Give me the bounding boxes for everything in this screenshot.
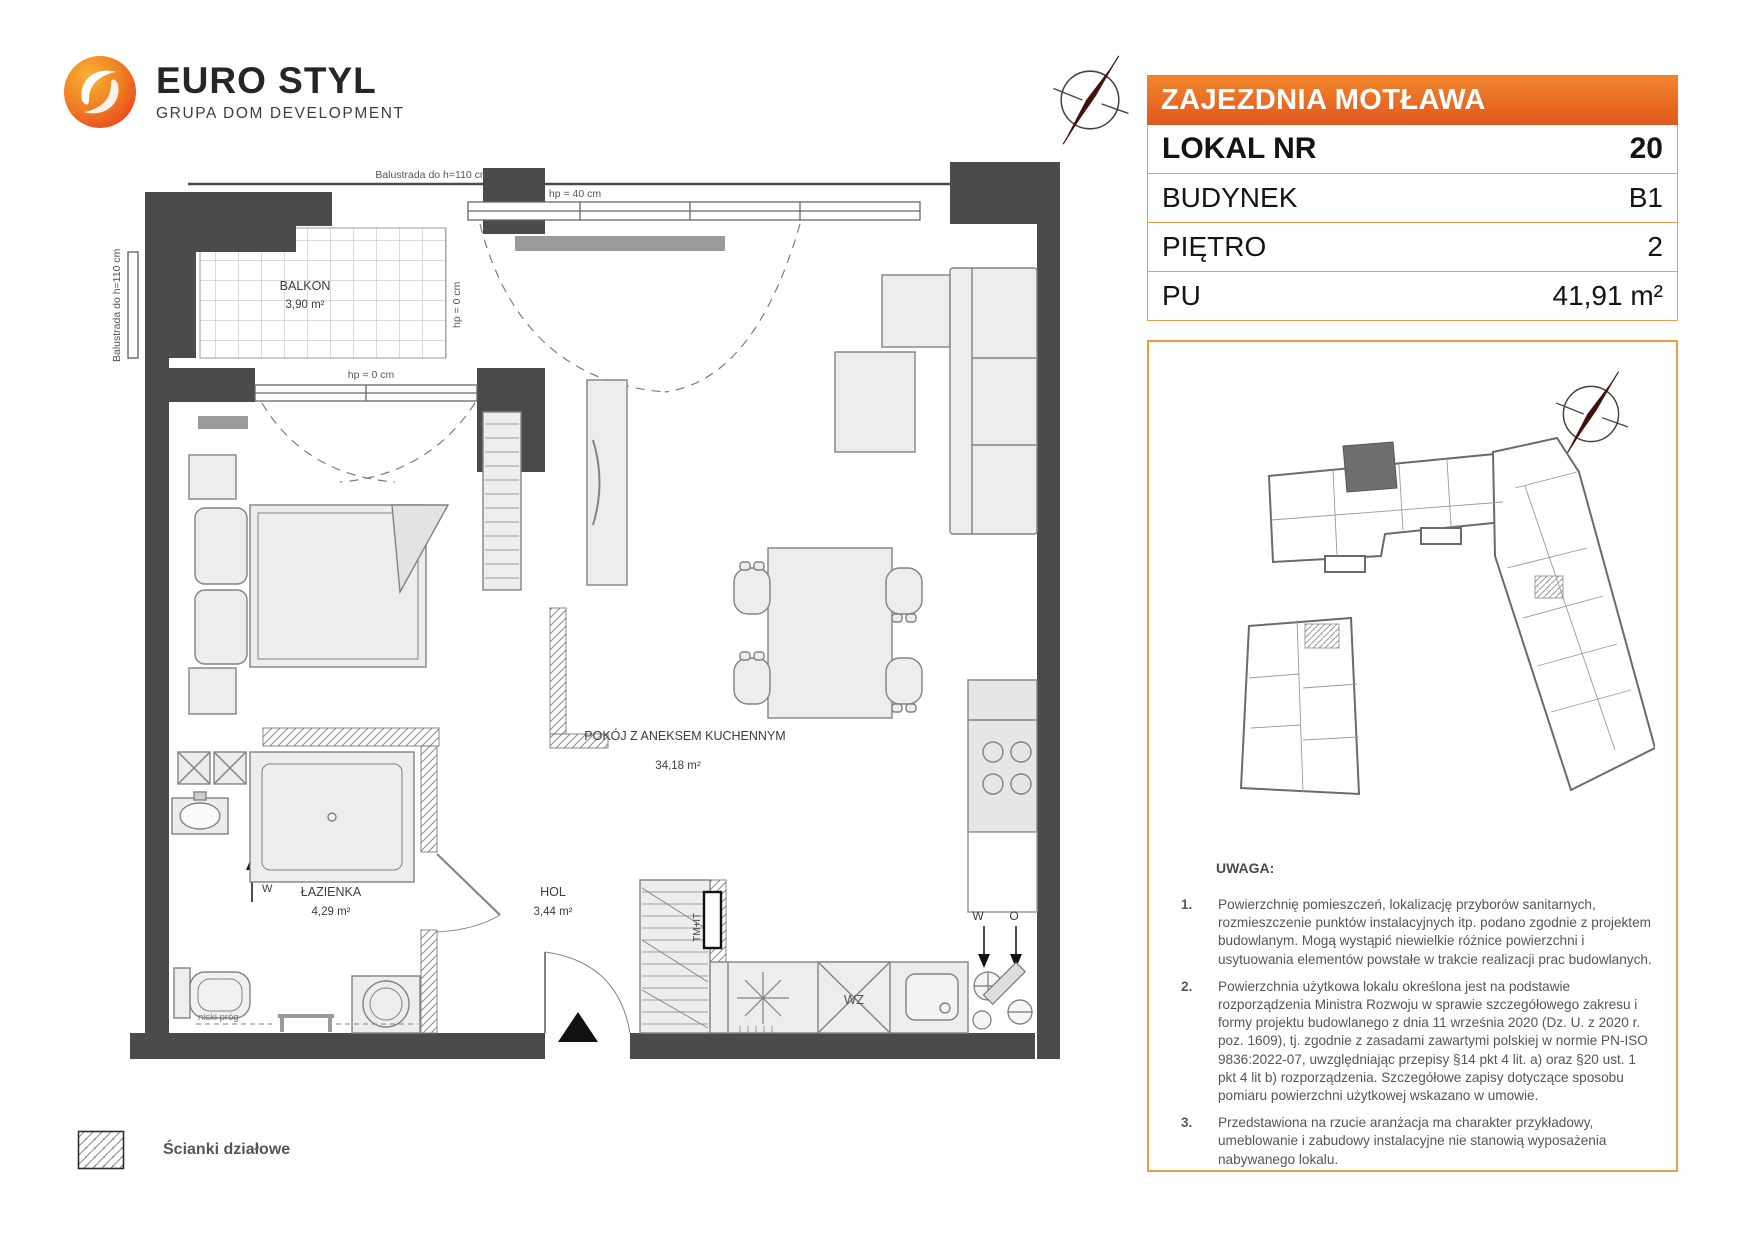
room-name-balkon: BALKON	[280, 279, 331, 293]
unit-details-panel: ZAJEZDNIA MOTŁAWA LOKAL NR 20 BUDYNEK B1…	[1147, 75, 1678, 321]
detail-value: B1	[1629, 182, 1663, 214]
entry-arrow-icon	[558, 1012, 598, 1042]
detail-row-lokal: LOKAL NR 20	[1148, 125, 1677, 174]
note-number: 2.	[1179, 978, 1218, 1105]
brand-subtitle: GRUPA DOM DEVELOPMENT	[156, 105, 405, 123]
tv-cabinet	[587, 380, 627, 585]
legend: Ścianki działowe	[77, 1130, 290, 1170]
project-title: ZAJEZDNIA MOTŁAWA	[1147, 75, 1678, 125]
threshold-bracket	[278, 1016, 334, 1032]
kitchen-tall-units	[968, 680, 1037, 832]
detail-value: 2	[1647, 231, 1663, 263]
furniture	[172, 268, 1037, 1042]
w-riser-label: W	[972, 909, 984, 923]
shower	[250, 752, 414, 882]
detail-row-budynek: BUDYNEK B1	[1148, 174, 1677, 223]
brand-title: EURO STYL	[156, 62, 405, 99]
detail-label: PU	[1162, 280, 1201, 312]
washbasin	[180, 803, 220, 829]
sink	[906, 974, 958, 1020]
pillow	[195, 508, 247, 584]
nightstand	[189, 455, 236, 499]
detail-value: 20	[1630, 132, 1663, 166]
note-text: Przedstawiona na rzucie aranżacja ma cha…	[1218, 1114, 1652, 1169]
hall-wardrobe	[640, 880, 710, 1033]
room-area-hol: 3,44 m²	[534, 906, 573, 918]
entry-door	[545, 952, 630, 1042]
coffee-table	[835, 352, 915, 452]
note-item: 1. Powierzchnię pomieszczeń, lokalizację…	[1179, 896, 1652, 969]
meter-box	[704, 892, 721, 948]
bathroom-door-leaf	[437, 854, 500, 915]
partition-hatch-swatch	[77, 1130, 125, 1170]
nightstand	[189, 668, 236, 714]
tm-it-label: TM+IT	[692, 913, 703, 942]
note-number: 3.	[1179, 1114, 1218, 1169]
note-item: 2. Powierzchnia użytkowa lokalu określon…	[1179, 978, 1652, 1105]
note-text: Powierzchnia użytkowa lokalu określona j…	[1218, 978, 1652, 1105]
hp0-vertical-label: hp = 0 cm	[451, 281, 463, 328]
location-and-notes-box: UWAGA: 1. Powierzchnię pomieszczeń, loka…	[1147, 340, 1678, 1172]
floor-plan: Balustrada do h=110 cm Balustrada do h=1…	[100, 140, 1060, 1080]
room-name-hol: HOL	[540, 885, 566, 899]
window-sill	[515, 236, 725, 251]
radiator	[198, 416, 248, 429]
balustrade-left	[128, 252, 138, 358]
w-bath-label: W	[262, 883, 273, 895]
room-name-pokoj: POKÓJ Z ANEKSEM KUCHENNYM	[584, 728, 785, 743]
wz-label: WZ	[844, 992, 864, 1007]
floor-key-plan	[1185, 428, 1655, 808]
notes: UWAGA: 1. Powierzchnię pomieszczeń, loka…	[1179, 860, 1652, 1178]
room-area-lazienka: 4,29 m²	[312, 906, 351, 918]
room-area-balkon: 3,90 m²	[286, 299, 325, 311]
detail-row-pu: PU 41,91 m²	[1148, 272, 1677, 321]
page: { "logo": { "brand": "EURO STYL", "subti…	[0, 0, 1754, 1240]
toilet	[174, 968, 250, 1018]
room-area-pokoj: 34,18 m²	[655, 760, 701, 772]
pipes	[973, 962, 1032, 1029]
hp40-label: hp = 40 cm	[549, 188, 601, 200]
compass-icon	[1042, 50, 1138, 150]
notes-title: UWAGA:	[1216, 860, 1652, 876]
detail-row-pietro: PIĘTRO 2	[1148, 223, 1677, 272]
detail-table: LOKAL NR 20 BUDYNEK B1 PIĘTRO 2 PU 41,91…	[1147, 125, 1678, 321]
note-text: Powierzchnię pomieszczeń, lokalizację pr…	[1218, 896, 1652, 969]
note-number: 1.	[1179, 896, 1218, 969]
room-name-lazienka: ŁAZIENKA	[301, 885, 362, 899]
wardrobe-louver	[483, 412, 521, 590]
building-outline	[1241, 438, 1655, 794]
detail-label: PIĘTRO	[1162, 231, 1266, 263]
note-item: 3. Przedstawiona na rzucie aranżacja ma …	[1179, 1114, 1652, 1169]
legend-label: Ścianki działowe	[163, 1141, 290, 1159]
highlighted-unit	[1343, 442, 1397, 492]
balustrade-left-label: Balustrada do h=110 cm	[111, 248, 123, 362]
o-riser-label: O	[1009, 909, 1018, 923]
detail-value: 41,91 m²	[1553, 280, 1664, 312]
pillow	[195, 590, 247, 664]
risers	[968, 832, 1037, 968]
brand-logo: EURO STYL GRUPA DOM DEVELOPMENT	[58, 50, 405, 134]
niski-prog-label: niski próg	[198, 1012, 239, 1023]
dining-table	[768, 548, 892, 718]
balustrade-top-label: Balustrada do h=110 cm	[375, 169, 489, 181]
detail-label: LOKAL NR	[1162, 132, 1316, 166]
hp0-horizontal-label: hp = 0 cm	[348, 369, 395, 381]
detail-label: BUDYNEK	[1162, 182, 1297, 214]
eurostyl-logo-icon	[58, 50, 142, 134]
